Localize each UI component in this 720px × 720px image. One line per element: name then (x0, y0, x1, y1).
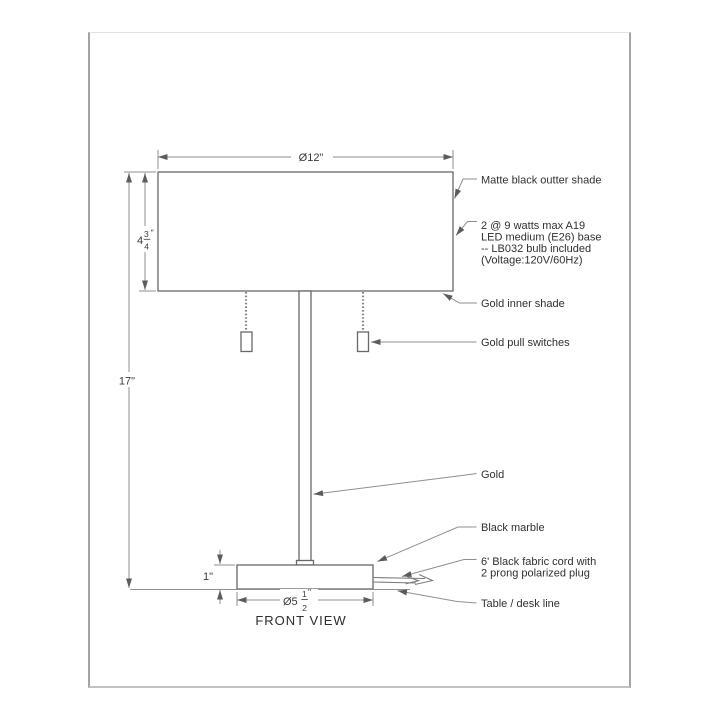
dim-shade-height-unit: " (151, 228, 154, 238)
dim-base-diameter-denominator: 2 (302, 603, 307, 613)
leader-black-marble (378, 527, 477, 562)
dim-base-diameter-numerator: 1 (302, 589, 307, 599)
annotation-bulb-line4: (Voltage:120V/60Hz) (481, 255, 583, 267)
dimension-base-diameter: Ø5 1 2 " (237, 587, 373, 613)
annotation-cord-line2: 2 prong polarized plug (481, 568, 590, 580)
dimension-base-height: 1" (203, 550, 235, 604)
annotation-outer-shade: Matte black outter shade (481, 175, 601, 187)
drawing-canvas: Ø12" 4 3 4 " 17" 1" (0, 0, 720, 720)
dim-base-diameter-unit: " (308, 587, 311, 597)
pull-switch-right (358, 332, 369, 352)
annotation-black-marble: Black marble (481, 522, 545, 534)
annotation-pull-switches: Gold pull switches (481, 337, 570, 349)
dim-shade-height-whole: 4 (137, 235, 143, 247)
dimension-shade-diameter: Ø12" (158, 150, 453, 169)
dim-base-height-label: 1" (203, 571, 213, 583)
leader-outer-shade (455, 179, 478, 199)
annotation-bulb-line1: 2 @ 9 watts max A19 (481, 220, 585, 232)
annotation-table-line: Table / desk line (481, 598, 560, 610)
pull-switch-left (241, 332, 252, 352)
leader-bulb-spec (456, 222, 477, 236)
annotation-bulb-line2: LED medium (E26) base (481, 232, 601, 244)
annotation-stem-gold: Gold (481, 469, 504, 481)
leader-inner-shade (443, 294, 477, 304)
annotation-cord-line1: 6' Black fabric cord with (481, 556, 596, 568)
leader-fabric-cord (402, 560, 477, 577)
lamp-technical-drawing: Ø12" 4 3 4 " 17" 1" (0, 0, 720, 720)
view-title: FRONT VIEW (255, 613, 346, 628)
annotation-bulb-line3: -- LB032 bulb included (481, 243, 591, 255)
power-cord-end-chevron-outer (415, 575, 433, 585)
dim-shade-diameter-label: Ø12" (299, 152, 324, 164)
lamp-base (237, 565, 373, 589)
stem-collar (297, 561, 314, 566)
annotation-inner-shade: Gold inner shade (481, 298, 565, 310)
leader-stem-gold (314, 474, 477, 495)
dim-total-height-label: 17" (119, 376, 135, 388)
dim-shade-height-numerator: 3 (144, 229, 149, 239)
lamp-shade-outline (158, 172, 453, 291)
leader-table-line (398, 591, 477, 603)
dim-shade-height-denominator: 4 (144, 242, 149, 252)
lamp-stem (299, 291, 311, 561)
dim-base-diameter-prefix: Ø5 (283, 596, 298, 608)
power-cord-line-top (373, 578, 425, 579)
